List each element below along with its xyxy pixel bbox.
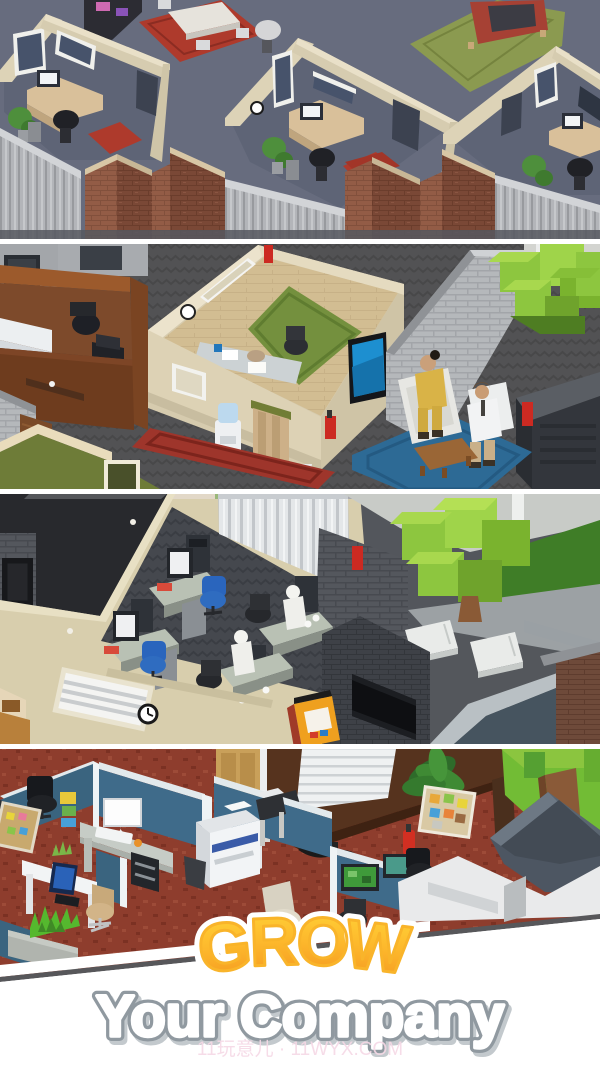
svg-text:R: R [248, 903, 300, 981]
svg-text:W: W [341, 906, 415, 989]
svg-text:11玩意儿 · 11WYX.COM: 11玩意儿 · 11WYX.COM [197, 1038, 403, 1060]
svg-text:G: G [194, 907, 255, 988]
